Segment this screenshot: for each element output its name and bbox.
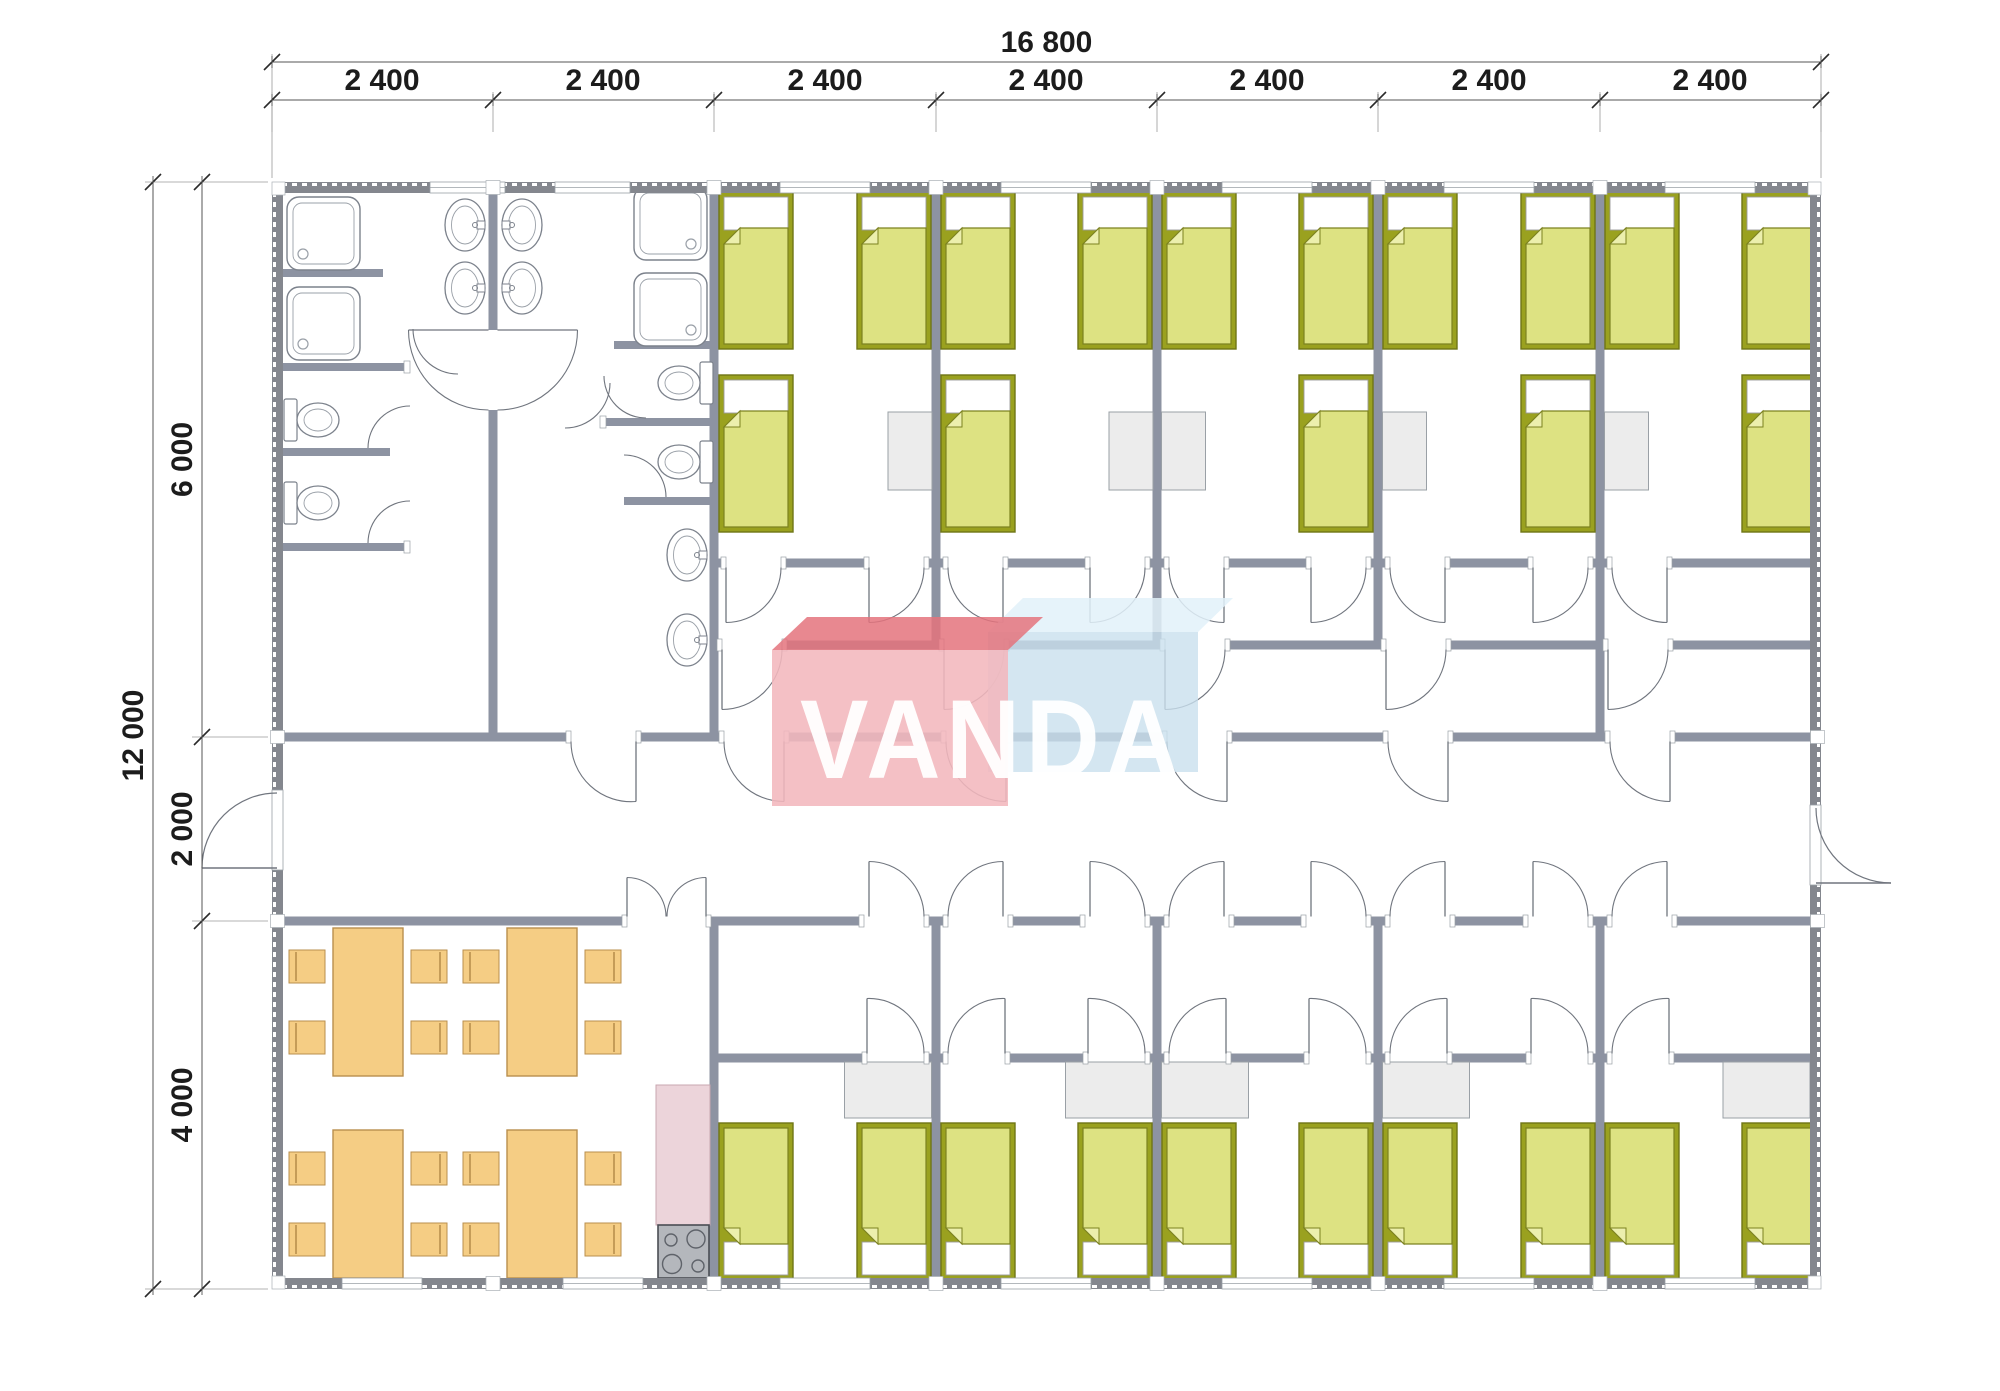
chair [463,1021,499,1054]
chair [463,950,499,983]
dining-table [507,1130,577,1278]
washbasin [502,262,542,314]
wall [1008,917,1085,926]
dimension-label: 2 400 [787,64,862,97]
kitchen-unit [656,1085,710,1278]
door-jamb [1164,1052,1169,1064]
wall [1667,559,1810,568]
bed [1521,1123,1595,1280]
washbasin [445,262,485,314]
chair [289,950,325,983]
door-swing [413,329,458,374]
window [563,1278,643,1289]
wall [1596,650,1605,733]
wall-post [486,181,500,195]
wall [1596,193,1605,641]
wall [1003,559,1090,568]
door-jamb [943,1052,948,1064]
door-swing [948,568,1003,623]
wall-post [1811,915,1825,928]
door-jamb [600,416,606,428]
wall-post [486,1277,500,1291]
wall [1446,641,1608,650]
door-jamb [1667,557,1672,569]
wall-post [1808,1276,1821,1289]
door-jamb [1447,1052,1452,1064]
door-swing [1388,742,1448,802]
door-jamb [924,915,929,927]
chair [289,1223,325,1256]
door-jamb [859,915,864,927]
wall [932,193,941,641]
door-jamb [1526,1052,1531,1064]
window [1665,1278,1755,1289]
door-swing [1311,568,1366,623]
wall [1374,926,1383,1279]
wall [1225,641,1386,650]
door-jamb [1085,557,1090,569]
toilet [284,482,339,524]
bed [1299,1123,1373,1280]
door-swing [667,878,706,917]
door-jamb [1607,915,1612,927]
dimension-label: 2 400 [1229,64,1304,97]
door-swing [627,878,666,917]
bed [719,1123,793,1280]
wall-post [1593,181,1607,195]
sanitary-fixtures [284,187,713,666]
floor-plan-canvas: 16 8002 4002 4002 4002 4002 4002 4002 40… [0,0,2000,1391]
bed [1299,192,1373,349]
shower-tray [287,287,360,360]
chair [411,950,447,983]
wall-post [707,1277,721,1291]
wall-post [272,1276,285,1289]
wall [1226,1054,1309,1063]
door-jamb [622,915,627,927]
bed [857,1123,931,1280]
door-swing [867,998,924,1053]
door-swing [368,406,410,448]
door-jamb [1145,915,1150,927]
window [342,1278,422,1289]
door-swing [1088,998,1145,1053]
desk [1605,412,1649,490]
door-jamb [1446,639,1451,651]
wall-post [1808,182,1821,195]
bed [1605,1123,1679,1280]
bed [941,375,1015,532]
wall [283,733,571,742]
vanda-logo-text: VANDA [800,677,1185,802]
door-jamb [1301,915,1306,927]
shower-tray [634,273,707,346]
door-jamb [1366,557,1371,569]
wall-post [272,182,285,195]
wall-post [929,181,943,195]
toilet [658,362,713,404]
door-jamb [1450,915,1455,927]
door-swing [571,742,636,802]
door-jamb [924,557,929,569]
stall-wall [283,543,410,551]
washbasin [667,614,707,666]
window [1001,1278,1091,1289]
dimension-label: 2 400 [344,64,419,97]
window [1444,182,1534,193]
chair [585,1152,621,1185]
window [555,182,630,193]
door-jamb [943,557,948,569]
desk [1162,412,1206,490]
door-swing [498,330,578,410]
toilet [658,441,713,483]
door-jamb [1080,915,1085,927]
dining-table [507,928,577,1076]
door-jamb [717,639,722,651]
wall [1445,559,1533,568]
door-jamb [1366,915,1371,927]
door-jamb [1385,915,1390,927]
door-jamb [1385,557,1390,569]
door-jamb [1445,557,1450,569]
wall-post [271,915,285,928]
bed [1742,192,1816,349]
door-jamb [1227,731,1232,743]
wall [1596,926,1605,1279]
bed [1078,1123,1152,1280]
door-jamb [1381,639,1386,651]
door-jamb [1003,557,1008,569]
window [1222,1278,1312,1289]
wall [1668,641,1810,650]
door-swing [1311,862,1366,917]
window [780,182,870,193]
door-jamb [721,557,726,569]
chair [463,1223,499,1256]
stove [658,1225,709,1278]
window [1444,1278,1534,1289]
door-jamb [1224,557,1229,569]
bed [1383,192,1457,349]
stall-wall [283,363,410,371]
door-jamb [924,1052,929,1064]
dimension-label: 12 000 [117,690,150,782]
door-jamb [1670,731,1675,743]
door-jamb [781,557,786,569]
floor-plan-drawing: 16 8002 4002 4002 4002 4002 4002 4002 40… [0,0,2000,1391]
door-jamb [1528,557,1533,569]
door-jamb [1448,731,1453,743]
door-jamb [706,915,711,927]
dimension-label: 2 400 [565,64,640,97]
exterior-door [202,793,277,868]
door-jamb [404,361,410,373]
door-jamb [1385,1052,1390,1064]
door-swing [1533,862,1588,917]
washbasin [667,529,707,581]
door-jamb [1588,1052,1593,1064]
door-jamb [404,541,410,553]
wall [1672,917,1810,926]
vanda-logo-front-edge [772,617,1043,650]
wall-post [1811,731,1825,744]
door-jamb [1005,1052,1010,1064]
door-swing [1090,862,1145,917]
wall-post [1593,1277,1607,1291]
door-swing [1169,998,1226,1053]
door-jamb [1164,557,1169,569]
desk [1109,412,1153,490]
wall [1153,926,1162,1279]
bed [1521,375,1595,532]
door-jamb [1588,557,1593,569]
door-jamb [1225,639,1230,651]
wall [932,926,941,1279]
wall [1224,559,1311,568]
exterior-door [1816,808,1891,883]
bed [1162,192,1236,349]
bed [1605,192,1679,349]
wall [1669,1054,1810,1063]
shower-tray [287,197,360,270]
door-jamb [1588,915,1593,927]
door-jamb [1669,1052,1674,1064]
door-jamb [1605,731,1610,743]
vanda-watermark: VANDA [772,598,1233,806]
washbasin [502,199,542,251]
desk [1723,1062,1810,1118]
door-jamb [1603,639,1608,651]
wall [710,926,719,1279]
door-jamb [1083,1052,1088,1064]
door-swing [1612,998,1669,1053]
dimension-label: 2 000 [166,791,199,866]
door-jamb [719,731,724,743]
door-jamb [1607,1052,1612,1064]
door-jamb [1226,1052,1231,1064]
bed [1078,192,1152,349]
wall [714,1054,867,1063]
wall-post [1150,1277,1164,1291]
door-jamb [1145,1052,1150,1064]
desk [1162,1062,1249,1118]
chair [289,1021,325,1054]
door-jamb [1304,1052,1309,1064]
wall [1153,193,1162,641]
door-swing [1612,568,1667,623]
door-swing [1390,862,1445,917]
door-jamb [864,557,869,569]
dining-table [333,928,403,1076]
chair [411,1021,447,1054]
window [1665,182,1755,193]
wall-post [1371,181,1385,195]
chair [585,950,621,983]
bed [1521,192,1595,349]
chair [411,1223,447,1256]
door-jamb [1672,915,1677,927]
chair [463,1152,499,1185]
dimension-label: 2 400 [1008,64,1083,97]
wall-post [707,181,721,195]
bed [1383,1123,1457,1280]
bed [1742,1123,1816,1280]
door-jamb [1229,915,1234,927]
door-swing [948,998,1005,1053]
door-swing [1610,742,1670,802]
desk [1066,1062,1153,1118]
door-swing [409,330,489,410]
door-jamb [1164,915,1169,927]
wall [283,917,627,926]
desk [888,412,932,490]
door-jamb [1145,557,1150,569]
stall-wall [624,497,714,505]
door-swing [1390,568,1445,623]
wall [489,410,498,733]
door-jamb [636,731,641,743]
door-swing [726,568,781,623]
wall-post [271,731,285,744]
chair [411,1152,447,1185]
door-swing [604,376,646,418]
wall [1005,1054,1088,1063]
washbasin [445,199,485,251]
door-swing [869,862,924,917]
door-swing [1309,998,1366,1053]
door-jamb [1008,915,1013,927]
wall [1448,733,1610,742]
door-swing [869,568,924,623]
window [1222,182,1312,193]
desk [845,1062,932,1118]
door-swing [1608,650,1668,710]
dimension-label: 2 400 [1451,64,1526,97]
door-jamb [1306,557,1311,569]
wall-post [1371,1277,1385,1291]
window [780,1278,870,1289]
bed [719,375,793,532]
wall [636,733,724,742]
door-jamb [862,1052,867,1064]
wall [1670,733,1810,742]
door-swing [1390,998,1447,1053]
door-swing [1386,650,1446,710]
stall-wall [604,418,714,426]
wall [781,559,869,568]
dimension-label: 2 400 [1672,64,1747,97]
bed [857,192,931,349]
door-jamb [566,731,571,743]
desk [1383,1062,1470,1118]
bed [1299,375,1373,532]
door-swing [368,501,410,543]
wall-post [1150,181,1164,195]
wall [489,193,498,330]
shower-tray [634,187,707,260]
door-swing [1169,862,1224,917]
dimension-label: 16 800 [1001,26,1093,59]
wall [1374,193,1383,641]
door-swing [1531,998,1588,1053]
chair [289,1152,325,1185]
door-jamb [1383,731,1388,743]
door-jamb [1366,1052,1371,1064]
door-jamb [1523,915,1528,927]
bed [941,1123,1015,1280]
wall [1229,917,1306,926]
stall-wall [283,448,390,456]
wall-post [929,1277,943,1291]
dimension-label: 4 000 [166,1067,199,1142]
door-jamb [1668,639,1673,651]
toilet [284,399,339,441]
chair [585,1223,621,1256]
door-jamb [1607,557,1612,569]
door-swing [1612,862,1667,917]
desk [1383,412,1427,490]
bed [719,192,793,349]
dimension-label: 6 000 [166,422,199,497]
door-swing [948,862,1003,917]
wall [706,917,864,926]
wall [1227,733,1388,742]
bed [941,192,1015,349]
bed [1742,375,1816,532]
door-jamb [943,915,948,927]
bed [1162,1123,1236,1280]
wall [1450,917,1528,926]
door-swing [1533,568,1588,623]
window [1001,182,1091,193]
kitchen-counter [656,1085,710,1225]
dining-table [333,1130,403,1278]
wall [1447,1054,1531,1063]
chair [585,1021,621,1054]
